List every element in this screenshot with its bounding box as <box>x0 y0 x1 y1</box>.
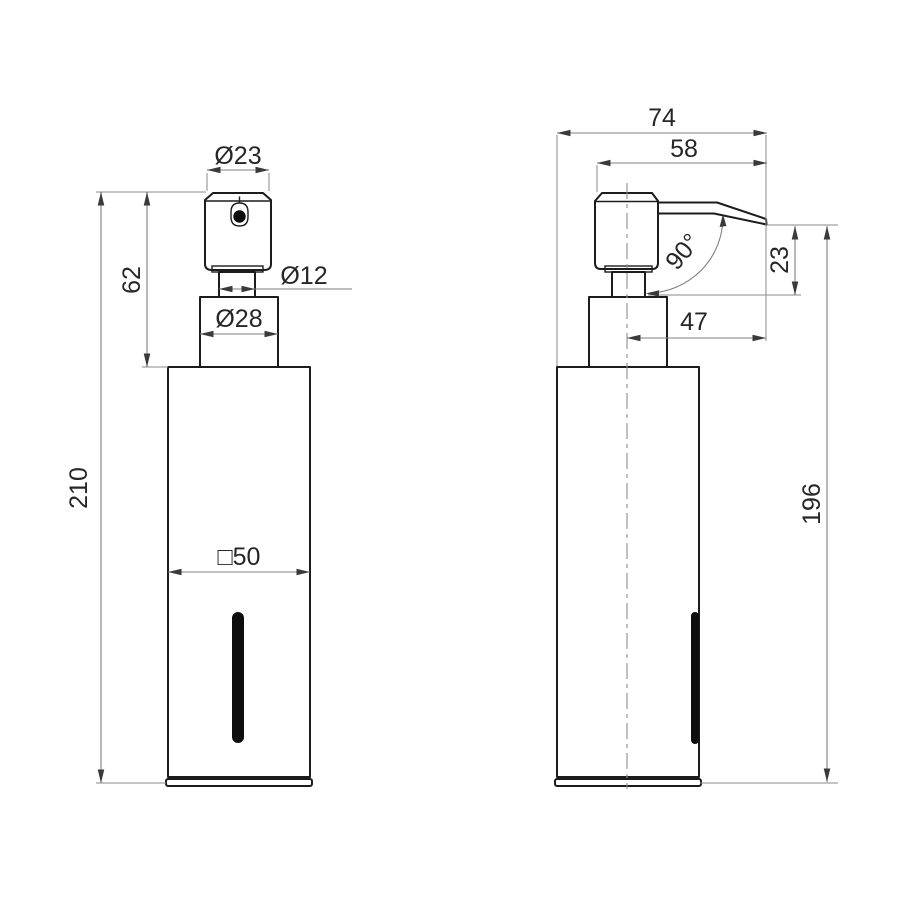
dim-label-body-height: 196 <box>798 483 826 525</box>
base-ring-side <box>555 779 701 786</box>
arc-arrow-left <box>646 290 659 296</box>
level-window-front <box>232 612 244 743</box>
dim-label-spout-drop: 23 <box>766 246 794 274</box>
dim-label-pump-height: 62 <box>118 266 146 294</box>
dim-spout-reach: 58 <box>597 135 767 163</box>
dim-label-overall-depth: 74 <box>648 104 676 132</box>
base-ring-front <box>166 779 312 786</box>
pump-head-front <box>205 193 271 270</box>
dim-label-spout-reach: 58 <box>670 135 698 163</box>
dim-pump-height: 62 <box>118 192 147 367</box>
nozzle-outlet-dot <box>233 210 245 222</box>
dim-label-collar-diameter: Ø28 <box>215 305 262 333</box>
side-view <box>555 183 767 789</box>
technical-drawing-page: Ø23 62 Ø12 Ø28 210 □50 <box>0 0 900 900</box>
soap-dispenser-drawing: Ø23 62 Ø12 Ø28 210 □50 <box>0 0 900 900</box>
dim-collar-diameter: Ø28 <box>200 305 278 334</box>
level-window-side <box>691 612 699 744</box>
front-view-dimensions: Ø23 62 Ø12 Ø28 210 □50 <box>65 142 352 783</box>
spout <box>658 203 767 225</box>
dim-spout-drop: 23 <box>766 226 795 295</box>
dim-body-width: □50 <box>168 543 310 572</box>
dim-label-neck-diameter: Ø12 <box>280 262 327 290</box>
dim-overall-depth: 74 <box>557 104 767 133</box>
dim-label-spout-projection: 47 <box>680 308 708 336</box>
dim-overall-height: 210 <box>65 192 101 783</box>
mounting-collar-side <box>589 297 667 367</box>
dim-label-overall-height: 210 <box>65 467 93 509</box>
bottle-body-side <box>557 367 699 777</box>
dim-spout-projection: 47 <box>627 308 766 338</box>
dim-label-spout-angle: 90° <box>660 228 706 275</box>
dim-label-body-width: □50 <box>218 543 261 571</box>
pump-neck-front <box>219 272 255 297</box>
dim-body-height: 196 <box>798 226 827 782</box>
pump-neck-side <box>612 272 645 297</box>
dim-label-head-diameter: Ø23 <box>214 142 261 170</box>
dim-head-diameter: Ø23 <box>207 142 269 170</box>
